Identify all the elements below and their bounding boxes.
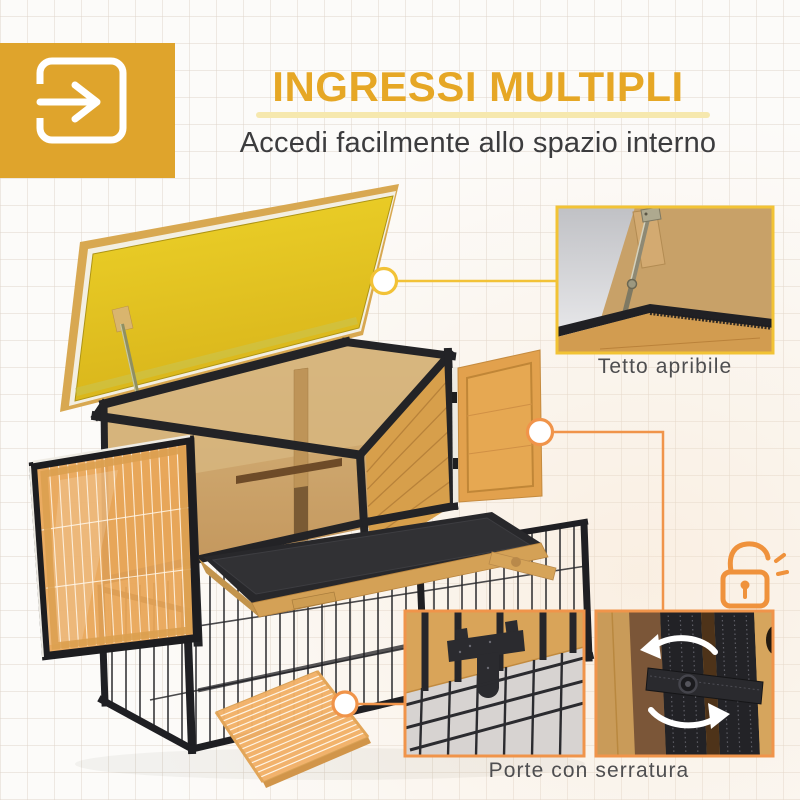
product-photo <box>0 0 800 800</box>
caption-roof: Tetto apribile <box>557 355 773 379</box>
tray-knob <box>511 557 521 567</box>
left-door <box>30 436 197 657</box>
callout-ramp <box>333 692 404 716</box>
caption-lock: Porte con serratura <box>405 759 773 783</box>
inset-roof-detail <box>557 207 773 353</box>
callout-roof <box>372 269 558 294</box>
open-padlock-icon <box>723 544 787 606</box>
callout-circle-door <box>528 420 553 445</box>
page: INGRESSI MULTIPLI Accedi facilmente allo… <box>0 0 800 800</box>
inset-lock-detail <box>596 611 786 756</box>
callout-circle-ramp <box>333 692 357 716</box>
callout-door <box>528 420 664 611</box>
inset-latch-detail <box>405 611 584 756</box>
callout-circle-roof <box>372 269 397 294</box>
